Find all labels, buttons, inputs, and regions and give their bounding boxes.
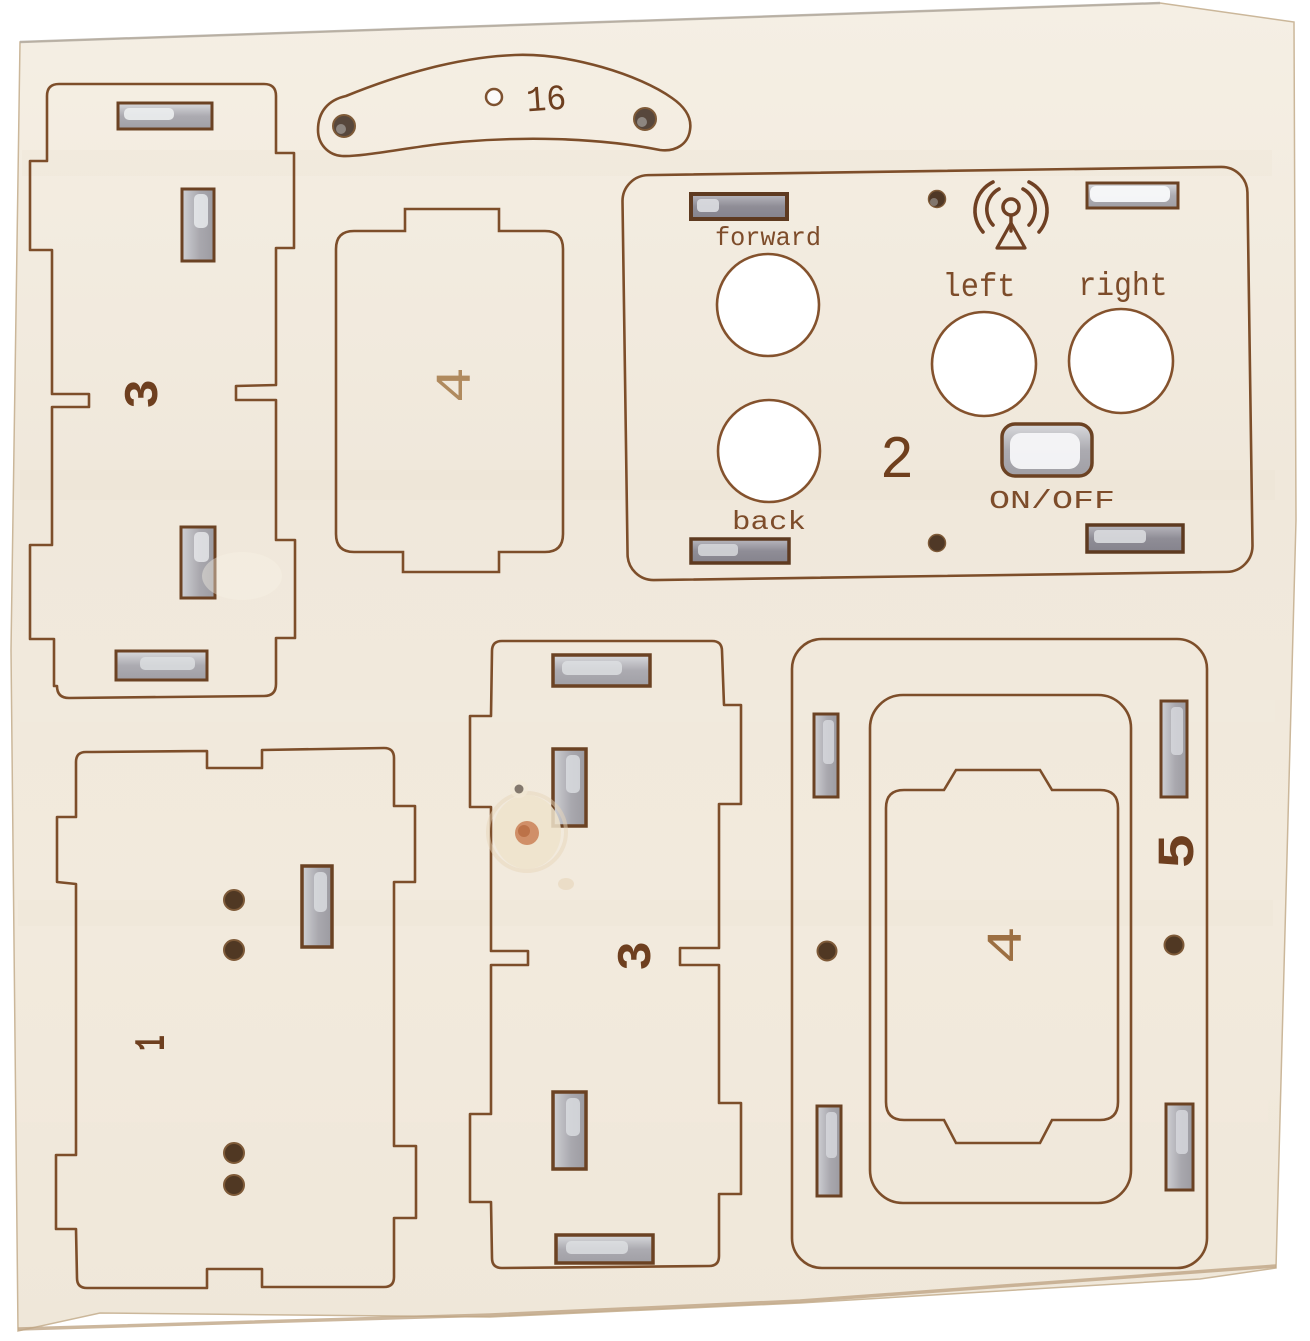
svg-text:2: 2 bbox=[880, 428, 914, 496]
svg-text:3: 3 bbox=[118, 379, 172, 409]
svg-text:right: right bbox=[1079, 268, 1168, 305]
svg-text:4: 4 bbox=[980, 926, 1037, 964]
svg-text:1: 1 bbox=[128, 1035, 178, 1051]
svg-text:4: 4 bbox=[429, 367, 486, 403]
svg-text:forward: forward bbox=[715, 223, 821, 253]
svg-text:back: back bbox=[732, 507, 806, 537]
svg-text:ON/OFF: ON/OFF bbox=[989, 486, 1115, 516]
svg-text:5: 5 bbox=[1150, 833, 1209, 869]
svg-text:left: left bbox=[943, 269, 1016, 306]
svg-text:16: 16 bbox=[525, 79, 568, 123]
svg-text:3: 3 bbox=[611, 941, 665, 971]
